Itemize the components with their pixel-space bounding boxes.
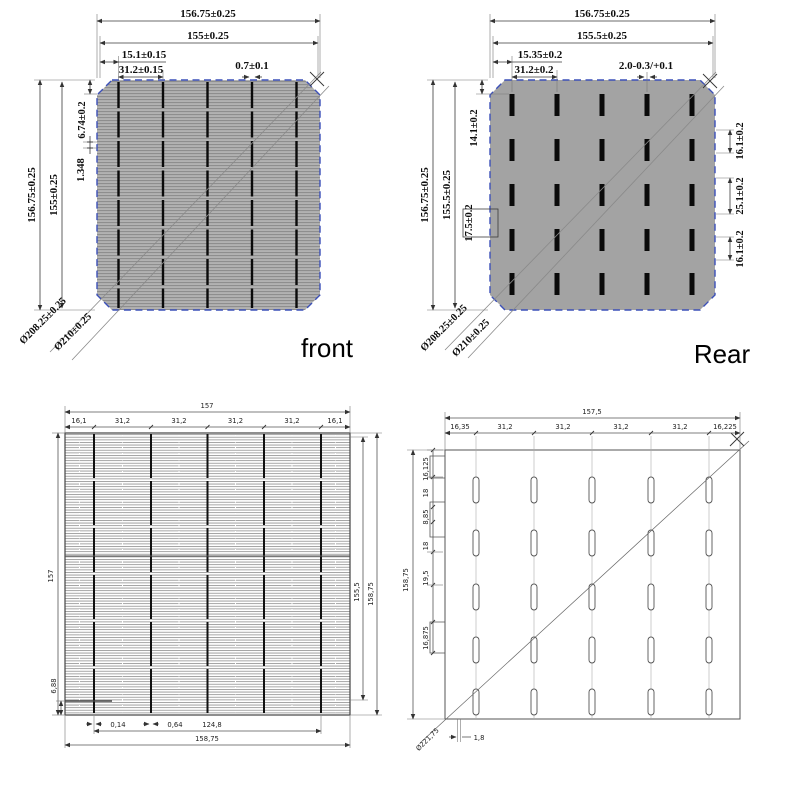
rear-cad-bottom-dimensions: 1,8 Ø221,75	[414, 719, 484, 753]
front-cad-right-dimensions: 155,5 158,75	[350, 433, 382, 715]
dim-fcad-total-bottom: 158,75	[195, 735, 219, 743]
dim-rcad-chain3: 8,85	[422, 509, 430, 524]
dim-rcad-seg2: 31,2	[497, 423, 512, 431]
dim-fcad-busbar-span: 124,8	[202, 721, 221, 729]
dim-rcad-seg5: 31,2	[672, 423, 687, 431]
dim-rcad-diagonal: Ø221,75	[414, 726, 440, 752]
dim-rcad-slot-width: 1,8	[474, 734, 485, 742]
dim-rear-pad-width: 2.0-0.3/+0.1	[619, 60, 673, 72]
dim-fcad-total-width: 157	[201, 402, 214, 410]
solar-cell-drawing-sheet: 156.75±0.25 155±0.25 15.1±0.15 31.2±0.15…	[0, 0, 800, 804]
dim-front-edge-clearance: 6.74±0.2	[77, 101, 88, 138]
rear-cad-left-tabs	[430, 456, 445, 653]
dim-fcad-bottom-edge: 6,88	[50, 678, 58, 693]
dim-front-overall-height: 156.75±0.25	[26, 167, 38, 223]
dim-front-busbar-width: 0.7±0.1	[235, 60, 269, 72]
dim-rcad-seg6: 16,225	[713, 423, 737, 431]
dim-front-busbar-pitch: 31.2±0.15	[119, 64, 164, 76]
dim-rear-right-top: 16.1±0.2	[735, 122, 746, 159]
dim-front-overall-width: 156.75±0.25	[180, 8, 236, 20]
dim-front-inner-width: 155±0.25	[187, 30, 229, 42]
dim-rcad-chain2: 18	[422, 489, 430, 498]
front-cad-left-dimensions: 157 6,88	[47, 433, 65, 715]
dim-front-inner-height: 155±0.25	[48, 174, 60, 216]
dim-rear-right-bot: 16.1±0.2	[735, 230, 746, 267]
dim-rear-overall-height: 156.75±0.25	[419, 167, 431, 223]
front-cad-top-dimensions: 157 16,1 31,2 31,2 31,2 31,2 16,1	[65, 402, 350, 433]
dim-fcad-seg5: 31,2	[284, 417, 299, 425]
front-view-drawing: 156.75±0.25 155±0.25 15.1±0.15 31.2±0.15…	[18, 8, 354, 363]
dim-rear-pad-top-offset: 14.1±0.2	[469, 109, 480, 146]
dim-fcad-seg4: 31,2	[228, 417, 243, 425]
front-cad-bottom-dimensions: 0,14 0,64 124,8 158,75	[65, 716, 350, 748]
dim-rear-inner-width: 155.5±0.25	[577, 30, 628, 42]
dim-front-busbar-offset: 15.1±0.15	[122, 49, 167, 61]
front-top-dimensions: 156.75±0.25 155±0.25 15.1±0.15 31.2±0.15…	[97, 8, 320, 80]
rear-cad-top-dimensions: 157,5 16,35 31,2 31,2 31,2 31,2 16,225	[445, 408, 740, 450]
dim-fcad-seg3: 31,2	[171, 417, 186, 425]
dim-rcad-seg3: 31,2	[555, 423, 570, 431]
dim-rcad-chain5: 19,5	[422, 570, 430, 585]
dim-rcad-chain1: 16,125	[422, 457, 430, 481]
rear-view-drawing: 156.75±0.25 155.5±0.25 15.35±0.2 31.2±0.…	[419, 8, 751, 369]
dim-fcad-outer-height: 158,75	[367, 582, 375, 606]
dim-rear-inner-height: 155.5±0.25	[441, 169, 453, 220]
dim-rcad-seg1: 16,35	[450, 423, 469, 431]
rear-right-dimensions: 16.1±0.2 25.1±0.2 16.1±0.2	[716, 122, 746, 267]
dim-rcad-seg4: 31,2	[613, 423, 628, 431]
dim-fcad-height: 157	[47, 570, 55, 583]
rear-cad-drawing: 157,5 16,35 31,2 31,2 31,2 31,2 16,225 1…	[402, 408, 749, 753]
dim-rear-pad-gap: 17.5±0.2	[464, 204, 475, 241]
dim-rear-pad-pitch: 31.2±0.2	[514, 64, 554, 76]
dim-rcad-chain6: 16,875	[422, 626, 430, 650]
dim-rear-overall-width: 156.75±0.25	[574, 8, 630, 20]
front-left-dimensions: 156.75±0.25 155±0.25 6.74±0.2 1.348	[26, 80, 97, 310]
front-caption: front	[301, 333, 354, 363]
dim-rear-right-mid: 25.1±0.2	[735, 177, 746, 214]
rear-cad-left-dimensions: 158,75 16,125 18 8,85 18 19,5 16,875	[402, 448, 445, 719]
dim-fcad-busbar-width2: 0,64	[167, 721, 182, 729]
dim-fcad-seg2: 31,2	[115, 417, 130, 425]
dim-rcad-total-width: 157,5	[582, 408, 601, 416]
dim-rcad-overall-height: 158,75	[402, 568, 410, 592]
dim-front-diagonal-outer: Ø210±0.25	[52, 311, 94, 353]
dim-front-finger-pitch: 1.348	[76, 158, 87, 182]
dim-fcad-seg1: 16,1	[71, 417, 86, 425]
dim-rcad-chain4: 18	[422, 542, 430, 551]
dim-fcad-busbar-width: 0,14	[110, 721, 125, 729]
drawing-canvas: 156.75±0.25 155±0.25 15.1±0.15 31.2±0.15…	[0, 0, 800, 804]
front-cad-drawing: 157 16,1 31,2 31,2 31,2 31,2 16,1 157 6,…	[47, 402, 382, 748]
rear-caption: Rear	[694, 339, 751, 369]
dim-fcad-inner-height: 155,5	[353, 582, 361, 601]
dim-fcad-seg6: 16,1	[327, 417, 342, 425]
dim-rear-pad-offset: 15.35±0.2	[518, 49, 563, 61]
